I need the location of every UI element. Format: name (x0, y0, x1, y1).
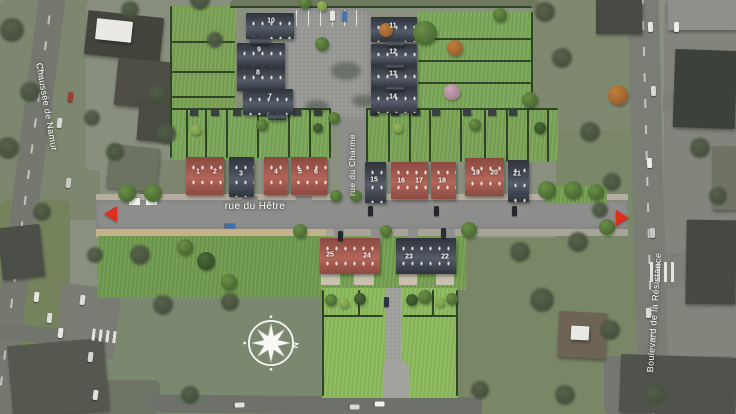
garden-hedge (429, 108, 431, 162)
garden-shed (488, 110, 496, 116)
garden-hedge (409, 108, 411, 162)
aerial-tree (600, 320, 620, 340)
house-number-7: 7 (268, 94, 272, 101)
car (338, 231, 343, 241)
aerial-tree (221, 293, 239, 311)
tree (293, 224, 307, 238)
tree (221, 274, 237, 290)
car (375, 402, 385, 407)
car (651, 86, 656, 96)
aerial-building (571, 326, 590, 341)
car (384, 297, 389, 307)
compass-north-label: N (290, 341, 301, 349)
garden-hedge (230, 6, 532, 8)
garden-hedge (172, 96, 235, 98)
garden-hedge (456, 290, 458, 396)
tree (354, 293, 366, 305)
aerial-building (95, 18, 133, 43)
garden-hedge (205, 108, 207, 158)
tree (315, 37, 329, 51)
compass-dot-bottom (270, 368, 273, 371)
tree (444, 84, 460, 100)
garden-hedge (418, 82, 531, 84)
house-number-11: 11 (389, 23, 396, 30)
car (226, 224, 236, 229)
garden-shed (432, 110, 440, 116)
garden-hedge (226, 108, 228, 158)
garden-hedge (506, 108, 508, 162)
aerial-tree (535, 2, 555, 22)
house-block (386, 40, 404, 46)
tree (256, 119, 268, 131)
aerial-tree (555, 385, 575, 405)
house-number-3: 3 (239, 171, 243, 178)
house-number-15: 15 (370, 177, 378, 184)
aerial-tree (33, 203, 51, 221)
driveway (429, 203, 451, 211)
house-block (386, 64, 404, 68)
car (342, 11, 347, 21)
house-number-4: 4 (274, 169, 278, 176)
tree (313, 123, 323, 133)
garden-shed (293, 110, 301, 116)
garden-hedge (309, 108, 311, 158)
tree (564, 181, 582, 199)
tree (588, 184, 604, 200)
aerial-tree (130, 245, 150, 265)
aerial-tree (471, 381, 489, 399)
compass-dot-top (270, 315, 273, 318)
house-block (371, 17, 417, 42)
house-number-17: 17 (415, 178, 423, 185)
aerial-tree (690, 138, 710, 158)
terrace (399, 274, 417, 285)
house-block (465, 158, 504, 196)
house-number-19: 19 (472, 170, 480, 177)
house-number-21: 21 (513, 171, 521, 178)
house-number-6: 6 (314, 169, 318, 176)
aerial-tree (181, 386, 199, 404)
tree (317, 1, 327, 11)
driveway (506, 203, 528, 211)
aerial-tree (592, 202, 608, 218)
aerial-building (0, 224, 45, 280)
tree (493, 8, 507, 22)
garden-hedge (388, 108, 390, 162)
house-number-2: 2 (213, 169, 217, 176)
house-number-1: 1 (196, 169, 200, 176)
tree (435, 297, 445, 307)
tree (380, 225, 392, 237)
tree (393, 123, 403, 133)
aerial-tree (603, 173, 621, 191)
aerial-tree (106, 143, 124, 161)
garden-shed (463, 110, 471, 116)
aerial-building (7, 338, 109, 414)
garden-hedge (484, 108, 486, 162)
garden-hedge (322, 315, 383, 317)
house-number-5: 5 (298, 169, 302, 176)
car (434, 206, 439, 216)
house-number-25: 25 (326, 252, 334, 259)
tree (522, 92, 538, 108)
garden-hedge (366, 108, 368, 162)
street-label-rue-du-charme: rue du Charme (347, 96, 357, 196)
tree (339, 298, 349, 308)
tree (197, 252, 215, 270)
garden-shed (190, 110, 198, 116)
garden-hedge (172, 71, 235, 73)
aerial-tree (153, 295, 173, 315)
car (441, 228, 446, 238)
tree (461, 222, 477, 238)
tree (534, 122, 546, 134)
tree (418, 290, 432, 304)
house-number-18: 18 (438, 178, 446, 185)
footpath-flare (383, 360, 409, 398)
aerial-tree (121, 1, 139, 19)
aerial-tree (0, 18, 24, 42)
aerial-tree (568, 232, 588, 252)
tree (469, 119, 481, 131)
car (330, 11, 335, 21)
aerial-building (619, 354, 736, 414)
terrace (436, 274, 454, 285)
garden-shed (233, 110, 241, 116)
house-number-12: 12 (389, 49, 397, 56)
house-block (508, 160, 529, 202)
car (234, 402, 244, 407)
aerial-tree (149, 85, 167, 103)
compass-star (251, 323, 290, 362)
site-plan-aerial-view: rue du Hêtre rue du Charme Chaussée de N… (0, 0, 736, 414)
tree (538, 181, 556, 199)
street-label-rue-du-hetre: rue du Hêtre (190, 201, 320, 212)
compass-dot-left (243, 342, 246, 345)
terrace (321, 274, 340, 285)
garden-hedge (172, 41, 235, 43)
garden-hedge (527, 108, 529, 162)
house-number-14: 14 (389, 94, 397, 101)
car (368, 206, 373, 216)
garden-shed (509, 110, 517, 116)
car (512, 206, 517, 216)
aerial-tree (207, 32, 223, 48)
car (674, 22, 679, 32)
garden-hedge (186, 108, 188, 158)
aerial-tree (510, 242, 530, 262)
tree (447, 40, 463, 56)
garden-hedge (403, 315, 456, 317)
aerial-tree (709, 187, 727, 205)
tree (330, 190, 342, 202)
house-block (371, 88, 417, 113)
house-number-10: 10 (267, 18, 275, 25)
tree-shadow (305, 100, 329, 113)
garden-hedge (322, 290, 324, 396)
house-number-16: 16 (397, 178, 405, 185)
tree (328, 112, 340, 124)
aerial-building (596, 0, 642, 34)
development-lawn (171, 6, 236, 110)
compass-rose: N (240, 312, 302, 374)
tree (413, 21, 437, 45)
aerial-tree (87, 247, 103, 263)
aerial-tree (552, 48, 572, 68)
house-block (264, 157, 288, 195)
aerial-building (673, 49, 736, 129)
garden-hedge (288, 108, 290, 158)
car (648, 22, 653, 32)
tree (177, 239, 193, 255)
house-block (386, 86, 404, 90)
tree (144, 184, 162, 202)
house-block (250, 37, 270, 44)
house-number-23: 23 (405, 254, 413, 261)
house-number-24: 24 (363, 253, 371, 260)
house-block (291, 157, 327, 195)
aerial-tree (156, 124, 176, 144)
garden-hedge (418, 60, 531, 62)
garden-hedge (547, 108, 549, 162)
aerial-building (685, 220, 736, 305)
house-block (186, 157, 224, 195)
house-block (237, 67, 285, 91)
garden-hedge (432, 290, 434, 316)
aerial-tree (530, 288, 554, 312)
house-number-9: 9 (257, 47, 261, 54)
house-block (268, 113, 286, 120)
entrance-arrow-west (104, 206, 117, 222)
tree (191, 125, 201, 135)
terrace (354, 274, 374, 285)
road-rue-du-hetre (96, 200, 628, 229)
tree (325, 294, 337, 306)
garden-hedge (460, 108, 462, 162)
aerial-tree (645, 385, 665, 405)
tree (599, 219, 615, 235)
house-number-20: 20 (490, 170, 498, 177)
tree-shadow (331, 62, 361, 80)
entrance-arrow-east (616, 210, 629, 226)
car (647, 158, 652, 168)
tree (446, 293, 458, 305)
tree (608, 85, 628, 105)
aerial-tree (84, 110, 100, 126)
tree (118, 184, 136, 202)
house-number-22: 22 (441, 254, 449, 261)
car (350, 405, 360, 410)
house-number-8: 8 (256, 70, 260, 77)
garden-shed (211, 110, 219, 116)
tree (406, 294, 418, 306)
aerial-tree (580, 122, 600, 142)
house-number-13: 13 (389, 71, 397, 78)
